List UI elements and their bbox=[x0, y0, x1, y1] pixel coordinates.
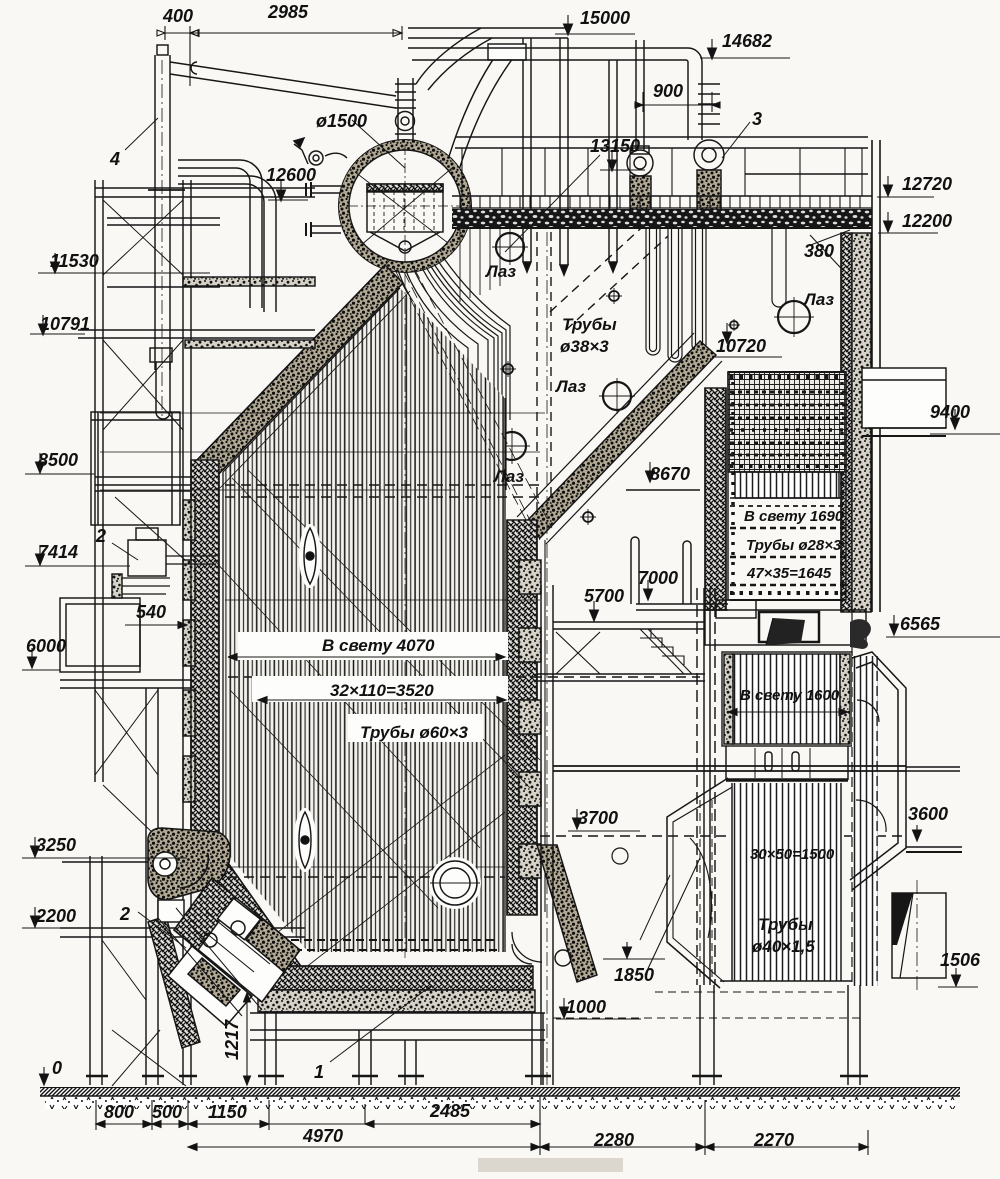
svg-text:Трубы ø60×3: Трубы ø60×3 bbox=[360, 723, 469, 742]
svg-text:800: 800 bbox=[104, 1102, 134, 1122]
svg-text:12200: 12200 bbox=[902, 211, 952, 231]
svg-text:7414: 7414 bbox=[38, 542, 78, 562]
svg-text:9400: 9400 bbox=[930, 402, 970, 422]
svg-text:500: 500 bbox=[152, 1102, 182, 1122]
svg-text:1: 1 bbox=[314, 1062, 324, 1082]
svg-text:12600: 12600 bbox=[266, 165, 316, 185]
svg-text:6565: 6565 bbox=[900, 614, 941, 634]
svg-text:7000: 7000 bbox=[638, 568, 678, 588]
svg-text:2280: 2280 bbox=[593, 1130, 634, 1150]
svg-text:ø38×3: ø38×3 bbox=[560, 337, 609, 356]
svg-text:15000: 15000 bbox=[580, 8, 630, 28]
svg-text:5700: 5700 bbox=[584, 586, 624, 606]
svg-text:3: 3 bbox=[752, 109, 762, 129]
svg-text:В свету 4070: В свету 4070 bbox=[322, 636, 435, 655]
svg-text:6000: 6000 bbox=[26, 636, 66, 656]
svg-text:1150: 1150 bbox=[208, 1102, 247, 1122]
svg-text:В свету 1600: В свету 1600 bbox=[740, 687, 840, 704]
svg-text:540: 540 bbox=[136, 602, 166, 622]
svg-text:2200: 2200 bbox=[35, 906, 76, 926]
svg-text:380: 380 bbox=[804, 241, 834, 261]
svg-text:10791: 10791 bbox=[40, 314, 90, 334]
svg-text:Лаз: Лаз bbox=[492, 467, 524, 486]
svg-text:Трубы ø28×3: Трубы ø28×3 bbox=[746, 537, 842, 554]
svg-text:2270: 2270 bbox=[753, 1130, 794, 1150]
svg-text:11530: 11530 bbox=[50, 251, 99, 271]
svg-text:13150: 13150 bbox=[590, 136, 640, 156]
svg-text:Трубы: Трубы bbox=[562, 315, 617, 334]
svg-text:12720: 12720 bbox=[902, 174, 952, 194]
svg-text:10720: 10720 bbox=[716, 336, 766, 356]
svg-text:2: 2 bbox=[95, 526, 106, 546]
svg-text:3600: 3600 bbox=[908, 804, 948, 824]
svg-text:3250: 3250 bbox=[36, 835, 76, 855]
svg-text:2: 2 bbox=[119, 904, 130, 924]
svg-text:400: 400 bbox=[162, 6, 193, 26]
svg-text:8670: 8670 bbox=[650, 464, 690, 484]
svg-text:2485: 2485 bbox=[429, 1101, 471, 1121]
svg-text:1000: 1000 bbox=[566, 997, 606, 1017]
svg-text:1850: 1850 bbox=[614, 965, 654, 985]
svg-text:3700: 3700 bbox=[578, 808, 618, 828]
svg-text:В свету 1690: В свету 1690 bbox=[744, 508, 844, 525]
svg-text:32×110=3520: 32×110=3520 bbox=[330, 681, 434, 700]
svg-text:Лаз: Лаз bbox=[484, 262, 516, 281]
svg-text:14682: 14682 bbox=[722, 31, 772, 51]
svg-text:8500: 8500 bbox=[38, 450, 78, 470]
svg-text:2985: 2985 bbox=[267, 2, 309, 22]
svg-text:4970: 4970 bbox=[302, 1126, 343, 1146]
svg-text:Лаз: Лаз bbox=[802, 290, 834, 309]
svg-text:30×50=1500: 30×50=1500 bbox=[750, 846, 835, 863]
svg-text:1506: 1506 bbox=[940, 950, 981, 970]
svg-text:0: 0 bbox=[52, 1058, 62, 1078]
svg-text:4: 4 bbox=[109, 149, 120, 169]
svg-text:Лаз: Лаз bbox=[554, 377, 586, 396]
svg-text:47×35=1645: 47×35=1645 bbox=[746, 565, 832, 582]
svg-text:Трубы: Трубы bbox=[758, 915, 813, 934]
svg-text:900: 900 bbox=[653, 81, 683, 101]
svg-text:1217: 1217 bbox=[222, 1019, 242, 1060]
svg-text:ø1500: ø1500 bbox=[316, 111, 367, 131]
svg-text:ø40×1,5: ø40×1,5 bbox=[752, 937, 815, 956]
